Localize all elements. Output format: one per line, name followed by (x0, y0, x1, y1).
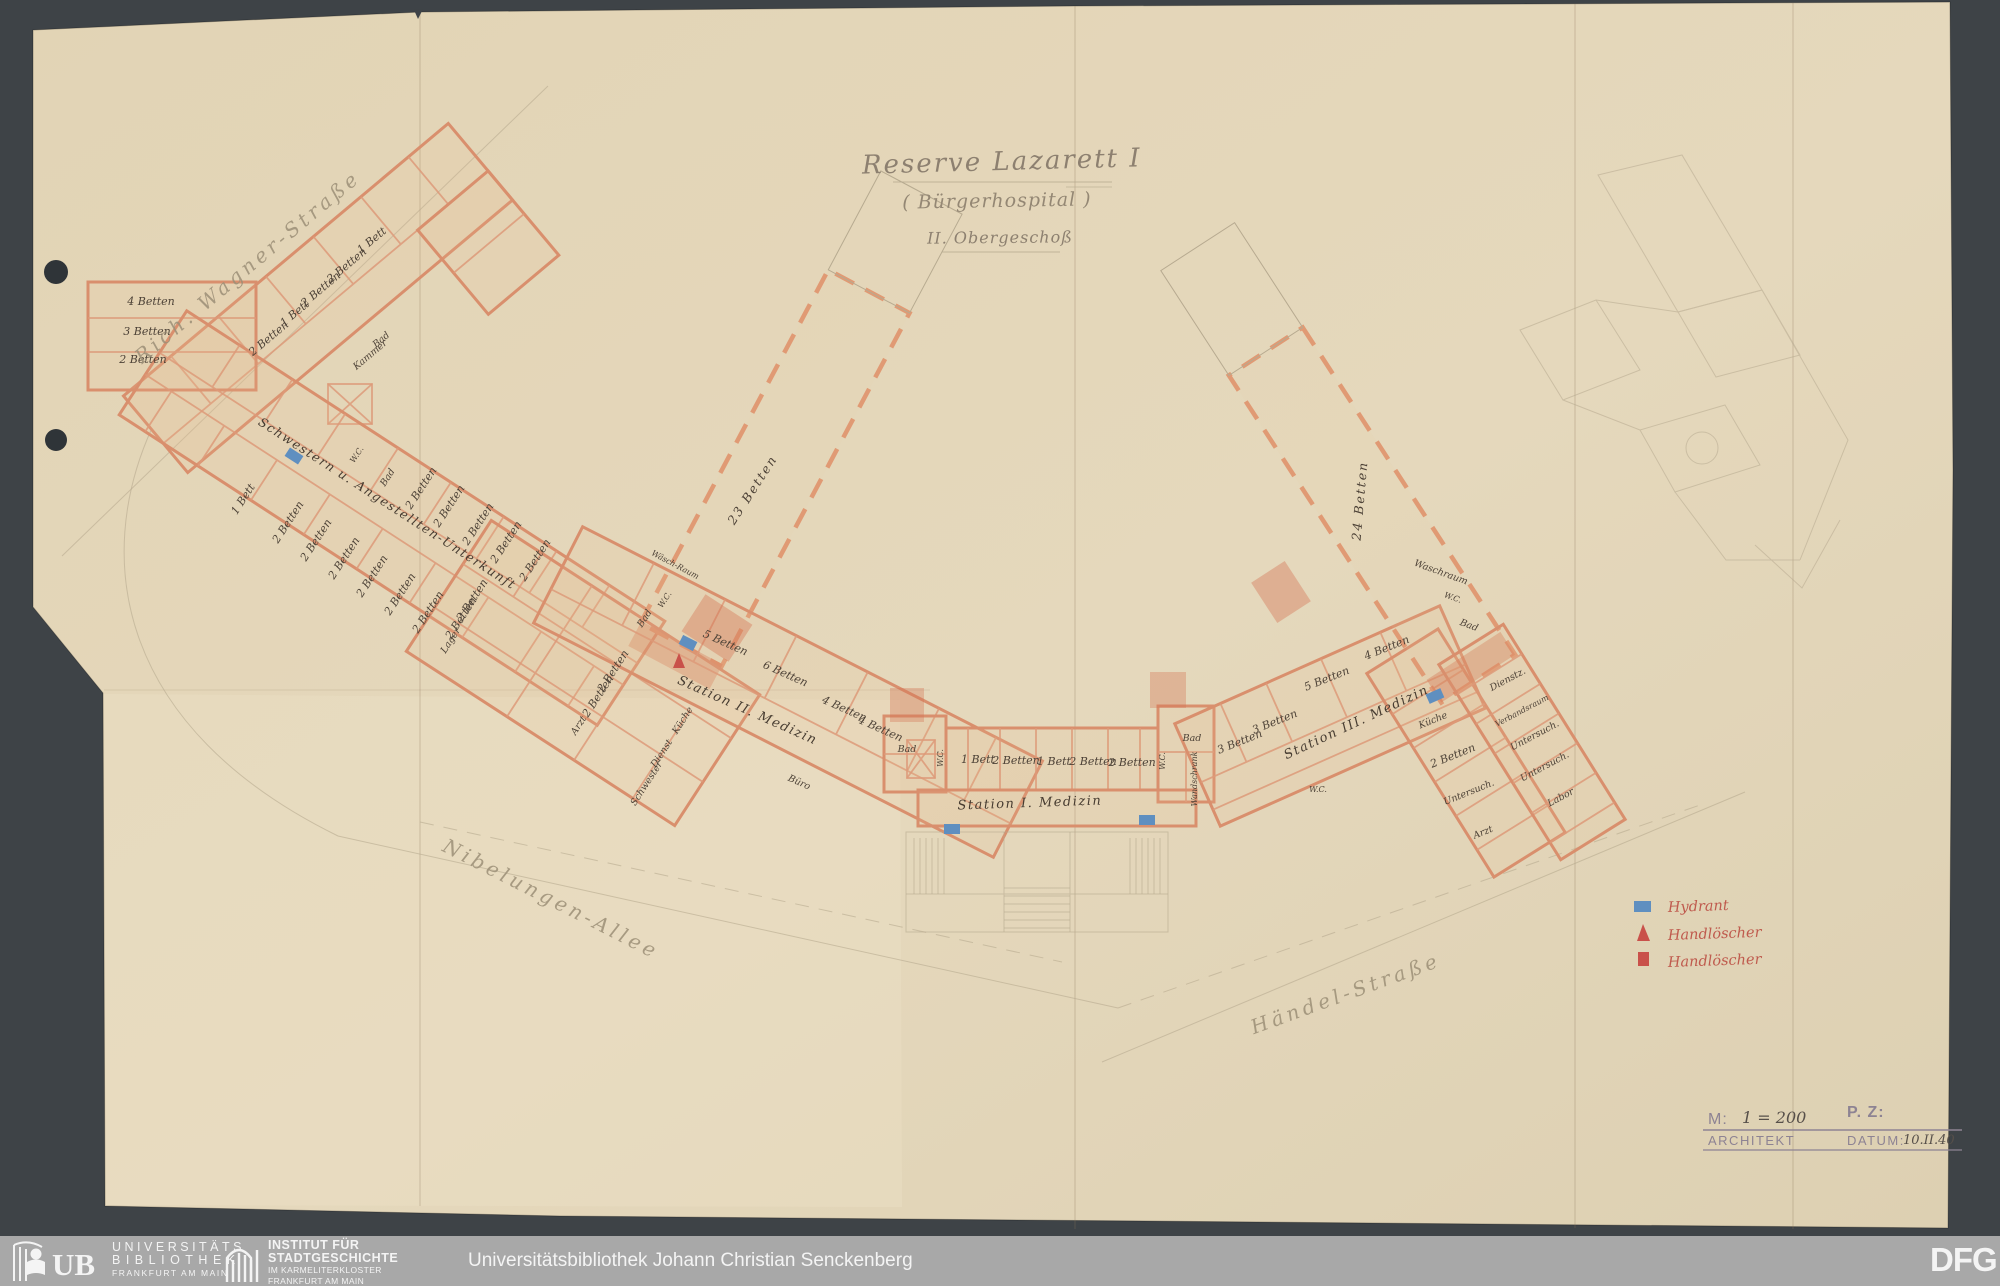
legend-square-symbol (1638, 952, 1649, 966)
dfg-logo: DFG (1930, 1241, 1997, 1279)
room-label: 2 Betten (991, 754, 1040, 767)
room-label: W.C. (936, 749, 945, 767)
room-label: W.C. (1158, 752, 1167, 770)
scale-value-handwritten: 1 = 200 (1742, 1108, 1806, 1127)
room-label: 1 Bett (961, 753, 996, 766)
punch-hole (44, 260, 68, 284)
isg-line: IM KARMELITERKLOSTER (268, 1265, 398, 1276)
isg-line: FRANKFURT AM MAIN (268, 1276, 398, 1286)
legend-label: Handlöscher (1667, 925, 1763, 944)
room-label: W.C. (1309, 785, 1327, 794)
isg-line: STADTGESCHICHTE (268, 1252, 398, 1265)
scanned-floor-plan: 1 Bett 2 Betten 2 Betten 1 Bett 2 Betten… (0, 0, 2000, 1236)
room-label: 2 Betten (1107, 756, 1156, 769)
paper-patch (104, 694, 902, 1207)
library-footer-bar: UB UNIVERSITÄTS BIBLIOTHEK FRANKFURT AM … (0, 1236, 2000, 1286)
institut-stadtgeschichte-logo (224, 1240, 264, 1282)
room-label: Bad (897, 744, 917, 755)
legend-hydrant-symbol (1634, 901, 1651, 912)
library-name-text: Universitätsbibliothek Johann Christian … (468, 1236, 913, 1286)
legend-label: Hydrant (1667, 898, 1730, 916)
ub-monogram: UB (52, 1247, 95, 1282)
punch-hole (45, 429, 67, 451)
scale-label: M: (1708, 1111, 1728, 1128)
ub-library-logo: UB (10, 1239, 106, 1283)
room-label: 1 Bett (1037, 755, 1072, 768)
room-label: Wandschrank (1190, 751, 1199, 806)
archive-scan-viewer: 1 Bett 2 Betten 2 Betten 1 Bett 2 Betten… (0, 0, 2000, 1286)
drawing-title-line3: II. Obergeschoß (926, 227, 1073, 247)
date-label: DATUM: (1847, 1133, 1905, 1148)
room-label: 4 Betten (126, 295, 175, 308)
legend-label: Handlöscher (1667, 952, 1763, 971)
pz-label: P. Z: (1847, 1104, 1885, 1121)
drawing-title-line2: ( Bürgerhospital ) (902, 188, 1092, 213)
room-label: Bad (1182, 733, 1202, 744)
institut-stadtgeschichte-text: INSTITUT FÜR STADTGESCHICHTE IM KARMELIT… (268, 1239, 398, 1286)
date-value-handwritten: 10.II.40 (1903, 1133, 1955, 1148)
architect-label: ARCHITEKT (1708, 1133, 1795, 1148)
